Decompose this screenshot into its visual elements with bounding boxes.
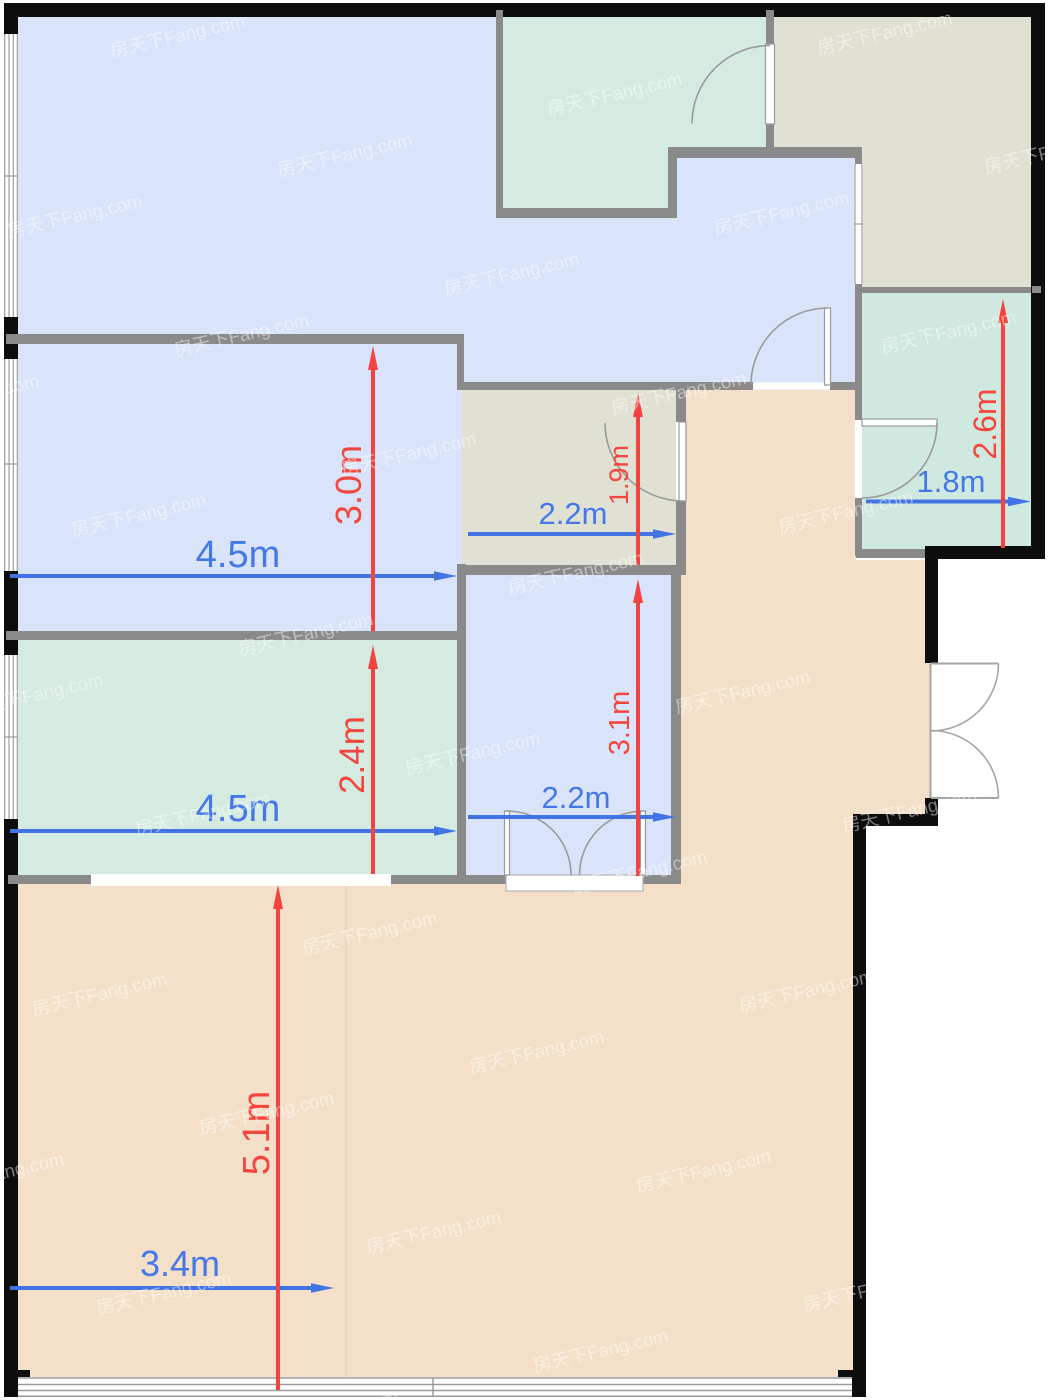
svg-text:2.6m: 2.6m xyxy=(967,388,1003,459)
svg-text:1.9m: 1.9m xyxy=(604,445,634,505)
svg-text:3.1m: 3.1m xyxy=(604,691,636,755)
svg-text:4.5m: 4.5m xyxy=(196,534,280,576)
svg-text:2.2m: 2.2m xyxy=(539,496,608,531)
svg-text:2.4m: 2.4m xyxy=(333,716,372,794)
svg-text:2.2m: 2.2m xyxy=(542,780,611,815)
svg-text:1.8m: 1.8m xyxy=(917,464,986,499)
